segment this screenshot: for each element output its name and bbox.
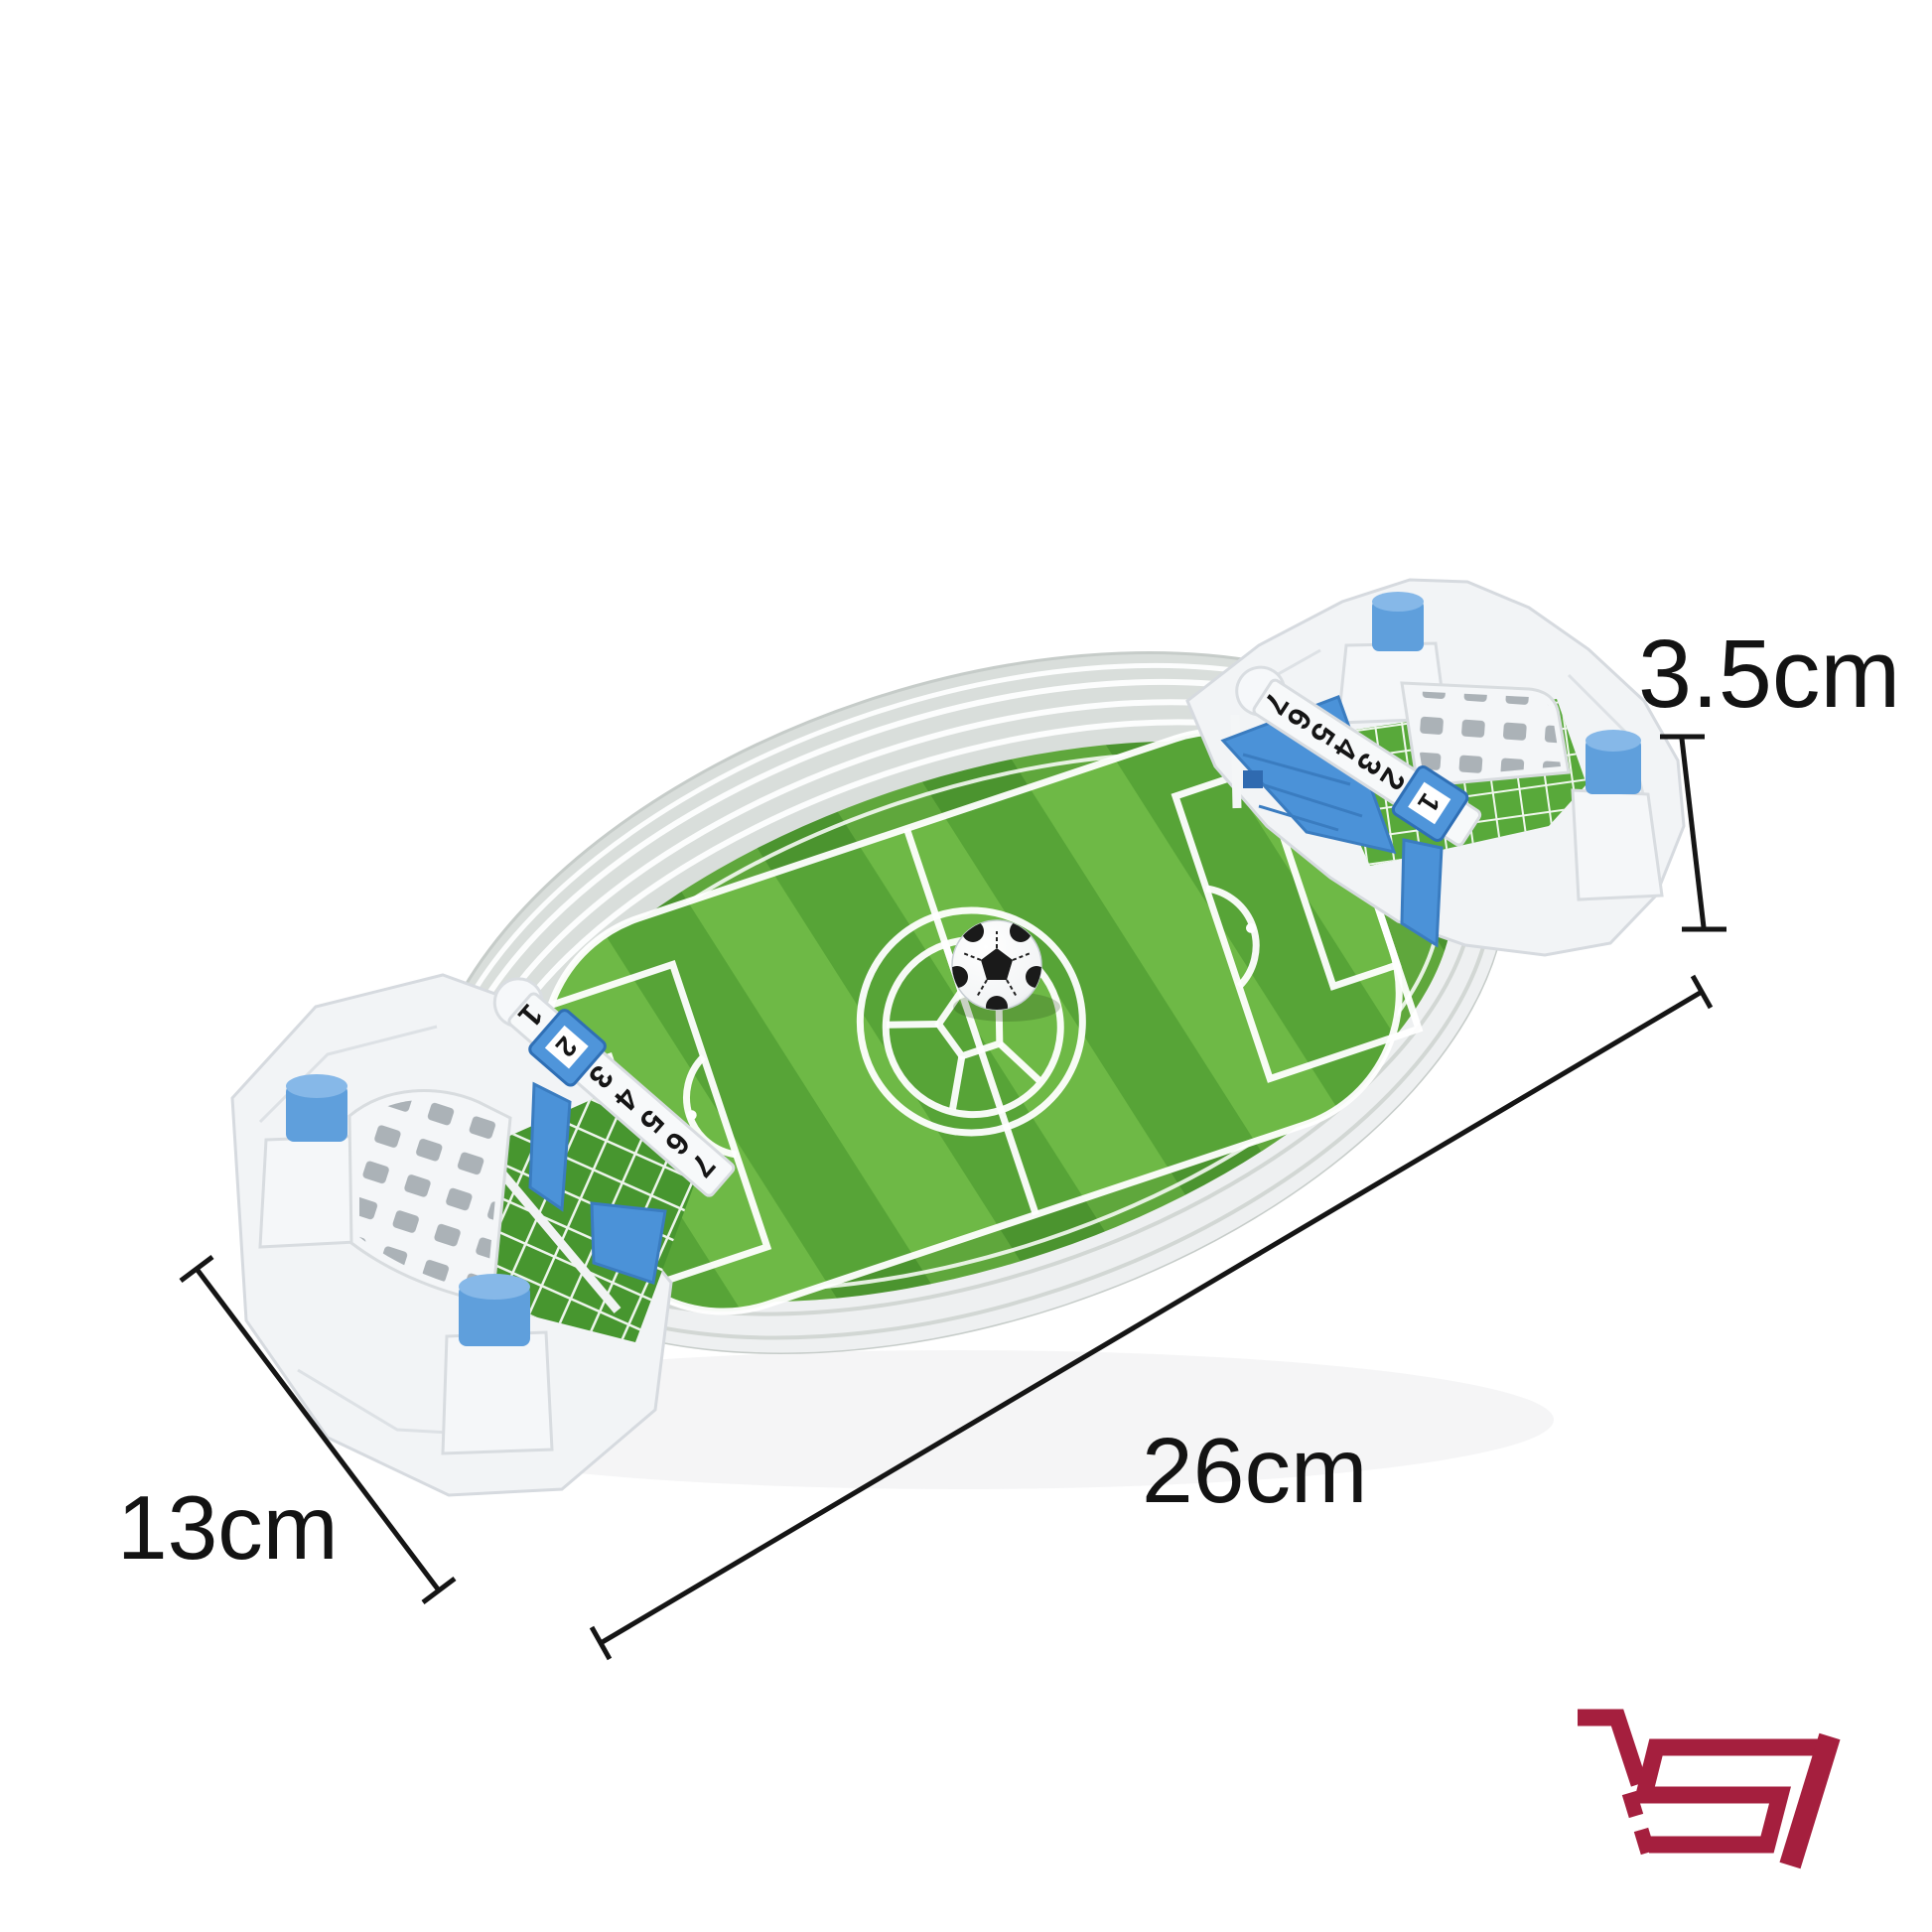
right-back-button — [1372, 592, 1424, 651]
product-photo: 7 6 5 4 3 2 1 — [0, 0, 1932, 1932]
width-label: 13cm — [117, 1478, 339, 1579]
length-tick-top — [1693, 976, 1711, 1008]
length-tick-bottom — [592, 1627, 610, 1659]
left-front-tower — [443, 1332, 552, 1453]
height-label: 3.5cm — [1638, 620, 1900, 728]
cart-dash-2 — [1641, 1830, 1648, 1853]
right-goal-post — [1235, 715, 1237, 808]
right-front-tower — [1573, 790, 1662, 899]
width-tick-top — [181, 1257, 212, 1281]
left-back-button — [286, 1074, 347, 1142]
right-goal-cage-holes — [1410, 691, 1561, 778]
left-marker-arm — [530, 1084, 570, 1209]
right-front-button — [1586, 730, 1641, 794]
shopping-cart-icon — [1578, 1718, 1830, 1865]
length-label: 26cm — [1142, 1419, 1367, 1522]
cart-handle — [1578, 1718, 1639, 1784]
left-front-button — [459, 1274, 530, 1346]
width-tick-bottom — [423, 1579, 455, 1602]
